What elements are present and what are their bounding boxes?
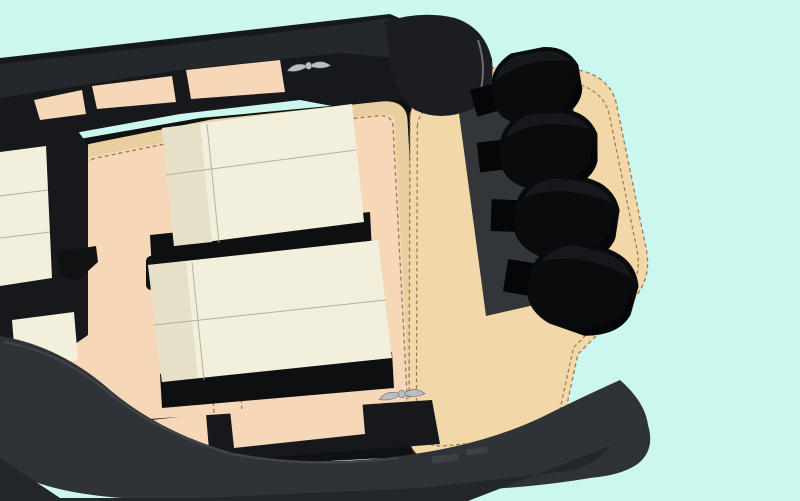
bow-seat-cushion — [0, 146, 52, 286]
boat-render — [0, 0, 800, 501]
